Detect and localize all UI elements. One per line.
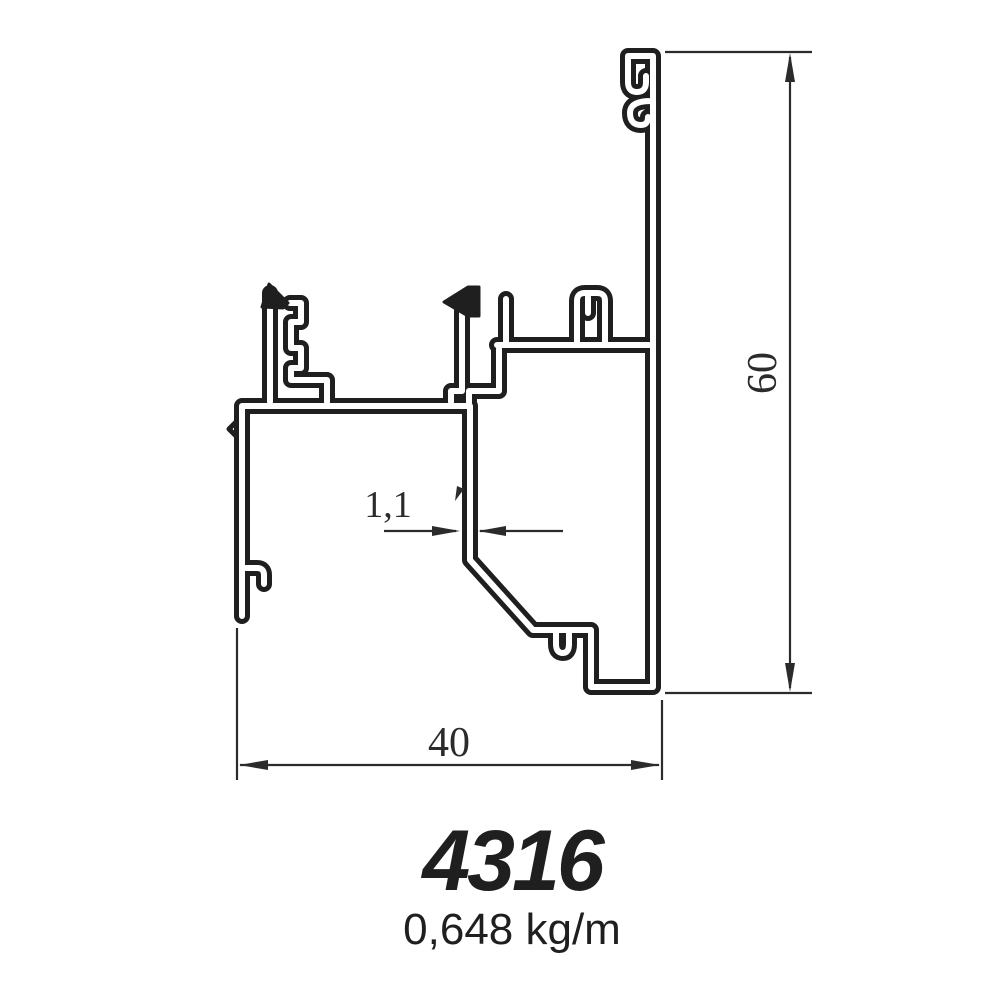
arrow-up-icon — [785, 53, 795, 82]
drawing-sheet: 60 40 1,1 4316 0,648 kg/m — [0, 0, 1000, 1000]
arrow-down-icon — [785, 663, 795, 692]
dimension-thickness-label: 1,1 — [364, 484, 412, 526]
middle-upstand-arrow-lip — [444, 287, 479, 316]
profile-code-label: 4316 — [262, 818, 762, 904]
profile-outline — [229, 56, 653, 687]
arrow-right-icon — [631, 760, 660, 770]
arrow-left-icon — [239, 760, 268, 770]
dimension-height-label: 60 — [740, 352, 786, 394]
profile-weight-label: 0,648 kg/m — [262, 908, 762, 952]
arrow-left-small-icon — [478, 526, 506, 536]
title-block: 4316 0,648 kg/m — [262, 818, 762, 952]
profile-wall-outer-contour — [242, 56, 653, 687]
dimension-height: 60 — [665, 52, 812, 693]
arrow-right-small-icon — [432, 526, 460, 536]
dimension-width-label: 40 — [428, 720, 470, 766]
